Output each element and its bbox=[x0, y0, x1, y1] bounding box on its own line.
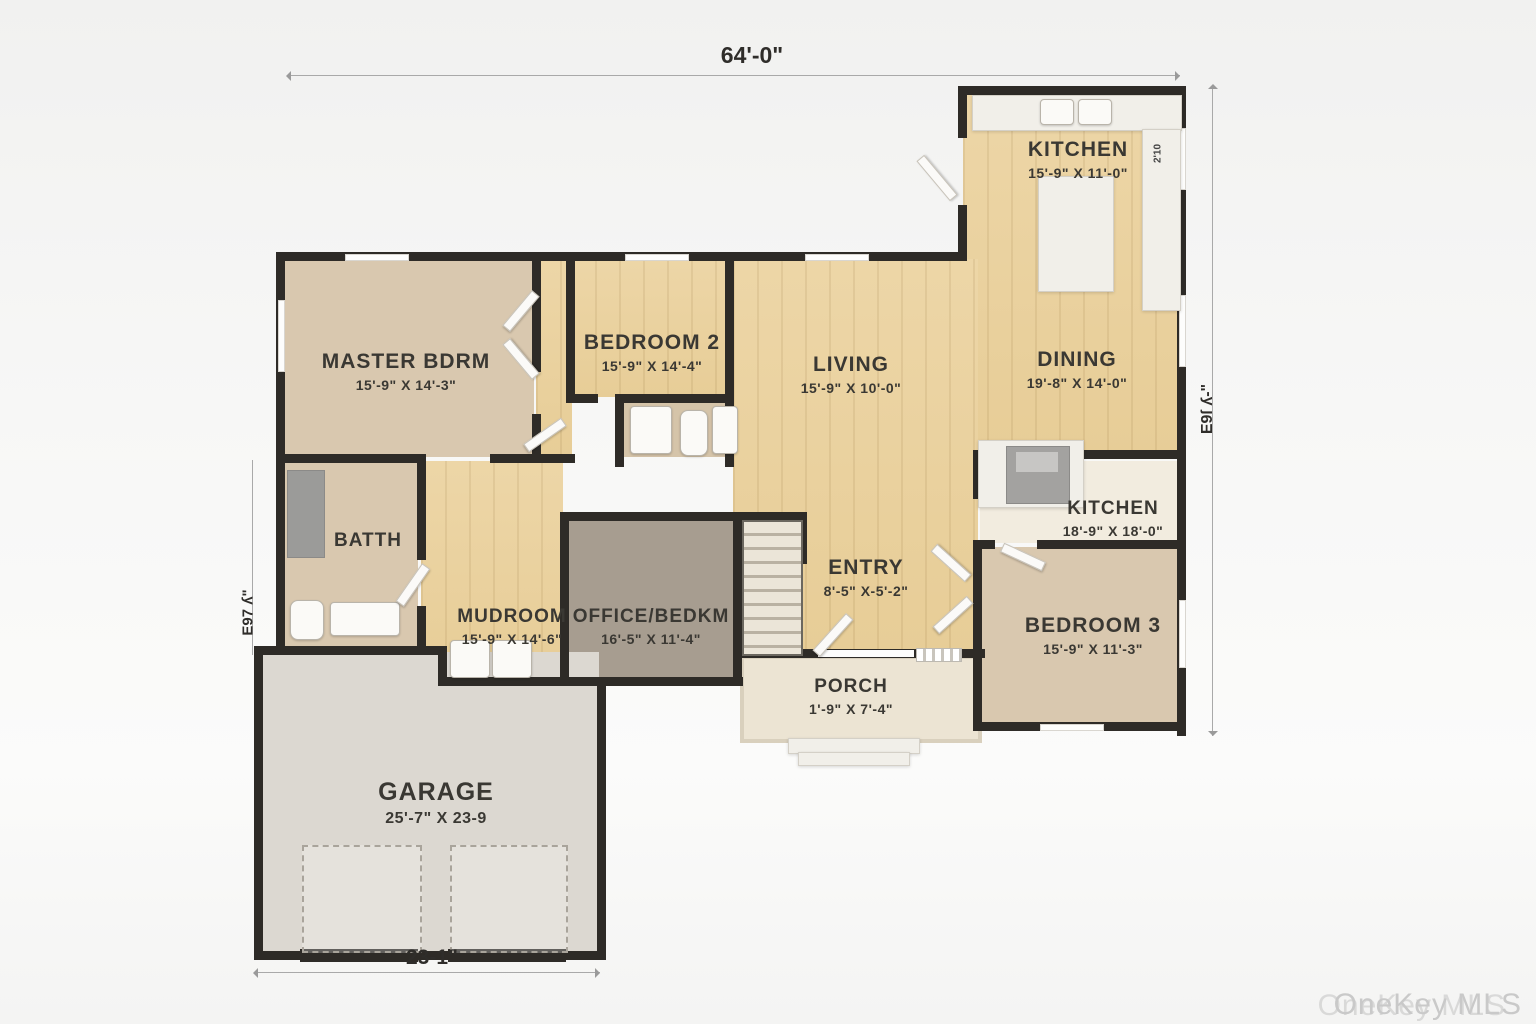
entry-dims: 8'-5" X-5'-2" bbox=[824, 583, 909, 599]
dim-bottom-label: 23-1" bbox=[406, 946, 458, 970]
garage-door-outline-1 bbox=[302, 845, 422, 953]
label-bedroom2: BEDROOM 2 15'-9" X 14'-4" bbox=[584, 331, 720, 374]
bedroom2-name: BEDROOM 2 bbox=[584, 331, 720, 355]
kitchen-island bbox=[1038, 176, 1114, 292]
label-porch: PORCH 1'-9" X 7'-4" bbox=[809, 676, 893, 717]
wall-kitchen2-bottom-a bbox=[973, 540, 995, 549]
bath-vanity bbox=[330, 602, 400, 636]
garage-door-outline-2 bbox=[450, 845, 568, 953]
kitchen2-name: KITCHEN bbox=[1063, 498, 1164, 520]
porch-step-2 bbox=[798, 752, 910, 766]
label-master: MASTER BDRM 15'-9" X 14'-3" bbox=[322, 350, 491, 393]
wall-bed3-left bbox=[973, 544, 982, 731]
bedroom2-dims: 15'-9" X 14'-4" bbox=[584, 358, 720, 374]
wall-bed2-bottom-b bbox=[615, 394, 734, 403]
window-master-left bbox=[278, 300, 285, 372]
garage-name: GARAGE bbox=[378, 778, 494, 807]
kitchen-counter-top bbox=[972, 95, 1182, 131]
label-mudroom: MUDROOM 15'-9" X 14'-6" bbox=[457, 606, 566, 647]
label-kitchen: KITCHEN 15'-9" X 11'-0" bbox=[1028, 138, 1128, 181]
master-name: MASTER BDRM bbox=[322, 350, 491, 374]
bath-toilet bbox=[290, 600, 324, 640]
label-garage: GARAGE 25'-7" X 23-9 bbox=[378, 778, 494, 828]
entry-name: ENTRY bbox=[824, 556, 909, 580]
bedroom2-floor bbox=[571, 259, 729, 397]
powder-toilet bbox=[680, 410, 708, 456]
powder-vanity bbox=[630, 406, 672, 454]
window-top-1 bbox=[345, 254, 409, 261]
wall-bed2-bottom-a bbox=[566, 394, 598, 403]
dim-line-top bbox=[290, 75, 1180, 76]
wall-kitchen-top bbox=[958, 86, 1186, 95]
window-bed3-bottom bbox=[1040, 724, 1104, 731]
wall-south-mudroom bbox=[438, 677, 743, 686]
bath-shower bbox=[287, 470, 325, 558]
kitchen-name: KITCHEN bbox=[1028, 138, 1128, 162]
dining-dims: 19'-8" X 14'-0" bbox=[1027, 375, 1128, 391]
dim-arrow-right-top bbox=[1208, 84, 1218, 89]
kitchen-sink bbox=[1040, 99, 1074, 125]
master-dims: 15'-9" X 14'-3" bbox=[322, 377, 491, 393]
dim-line-bottom bbox=[257, 972, 600, 973]
porch-name: PORCH bbox=[809, 676, 893, 698]
mudroom-name: MUDROOM bbox=[457, 606, 566, 628]
dim-arrow-bottom-right bbox=[595, 968, 600, 978]
label-kitchen2: KITCHEN 18'-9" X 18'-0" bbox=[1063, 498, 1164, 539]
wall-bath-right-a bbox=[417, 460, 426, 560]
dining-name: DINING bbox=[1027, 348, 1128, 372]
label-living: LIVING 15'-9" X 10'-0" bbox=[801, 353, 902, 396]
window-bed3-right bbox=[1179, 600, 1186, 668]
wall-kitchen-left-a bbox=[958, 86, 967, 138]
wall-powder-left bbox=[615, 394, 624, 467]
label-bedroom3: BEDROOM 3 15'-9" X 11'-3" bbox=[1025, 614, 1161, 657]
bedroom3-name: BEDROOM 3 bbox=[1025, 614, 1161, 638]
dim-arrow-bottom-left bbox=[253, 968, 258, 978]
wall-mid-bath bbox=[276, 454, 426, 463]
label-dining: DINING 19'-8" X 14'-0" bbox=[1027, 348, 1128, 391]
window-top-3 bbox=[805, 254, 869, 261]
dim-top-label: 64'-0" bbox=[721, 42, 783, 69]
wall-office-left bbox=[560, 512, 569, 686]
dim-arrow-top-right bbox=[1175, 71, 1180, 81]
label-bath: BATTH bbox=[334, 530, 402, 552]
living-name: LIVING bbox=[801, 353, 902, 377]
window-top-2 bbox=[625, 254, 689, 261]
garage-dims: 25'-7" X 23-9 bbox=[378, 810, 494, 828]
dim-arrow-top-left bbox=[286, 71, 291, 81]
kitchen-sink-2 bbox=[1078, 99, 1112, 125]
floor-plan: KITCHEN 15'-9" X 11'-0" MASTER BDRM 15'-… bbox=[0, 0, 1536, 1024]
kitchen-doorway-door bbox=[916, 155, 957, 201]
wall-bath-right-b bbox=[417, 606, 426, 654]
porch-dims: 1'-9" X 7'-4" bbox=[809, 701, 893, 717]
wall-kitchen2-bottom-b bbox=[1037, 540, 1186, 549]
label-entry: ENTRY 8'-5" X-5'-2" bbox=[824, 556, 909, 599]
dim-arrow-right-bottom bbox=[1208, 731, 1218, 736]
powder-sink bbox=[712, 406, 738, 454]
living-dims: 15'-9" X 10'-0" bbox=[801, 380, 902, 396]
label-office: OFFICE/BEDKM 16'-5" X 11'-4" bbox=[573, 606, 730, 647]
front-door-opening bbox=[818, 650, 914, 657]
dim-kitchen-counter-label: 2'10 bbox=[1153, 134, 1164, 174]
wall-bed2-left bbox=[566, 252, 575, 398]
office-dims: 16'-5" X 11'-4" bbox=[573, 631, 730, 647]
wall-stairs-top bbox=[742, 512, 806, 520]
wall-office-top bbox=[560, 512, 742, 521]
watermark-onekey-mls: OneKey MLS bbox=[1334, 988, 1522, 1022]
mudroom-dims: 15'-9" X 14'-6" bbox=[457, 631, 566, 647]
wall-garage-right bbox=[597, 681, 606, 960]
wall-mid-hall bbox=[490, 454, 575, 463]
dim-right-label: E9ſ ʎ-" bbox=[1199, 379, 1217, 439]
bedroom3-dims: 15'-9" X 11'-3" bbox=[1025, 641, 1161, 657]
wall-left-garage bbox=[254, 646, 263, 960]
staircase bbox=[742, 520, 803, 656]
kitchen-dims: 15'-9" X 11'-0" bbox=[1028, 165, 1128, 181]
bath-name: BATTH bbox=[334, 530, 402, 552]
dim-left-label: E97 ʎ" bbox=[240, 583, 257, 643]
range-hood bbox=[1016, 452, 1058, 472]
wall-master-right-a bbox=[532, 252, 541, 372]
front-door-threshold bbox=[916, 648, 962, 662]
wall-office-right bbox=[733, 512, 742, 686]
office-name: OFFICE/BEDKM bbox=[573, 606, 730, 628]
kitchen2-dims: 18'-9" X 18'-0" bbox=[1063, 523, 1164, 539]
